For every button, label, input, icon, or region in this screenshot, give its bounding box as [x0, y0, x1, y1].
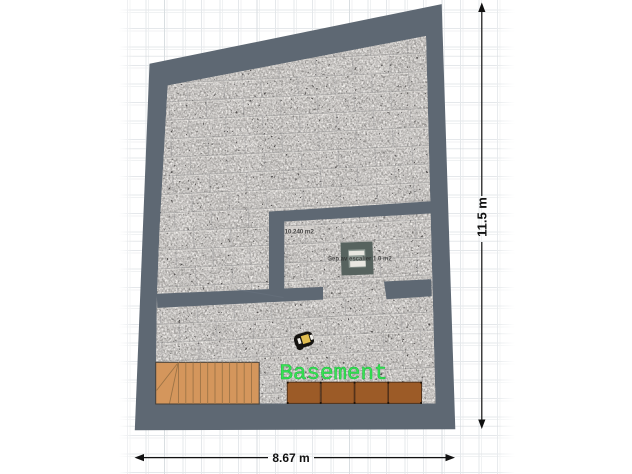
- svg-text:11.5 m: 11.5 m: [474, 197, 489, 237]
- svg-text:Basement: Basement: [280, 360, 388, 386]
- svg-text:Sep av escalier 1.0 m2: Sep av escalier 1.0 m2: [328, 257, 392, 263]
- svg-text:8.67 m: 8.67 m: [272, 451, 309, 465]
- svg-text:10.240 m2: 10.240 m2: [285, 229, 315, 236]
